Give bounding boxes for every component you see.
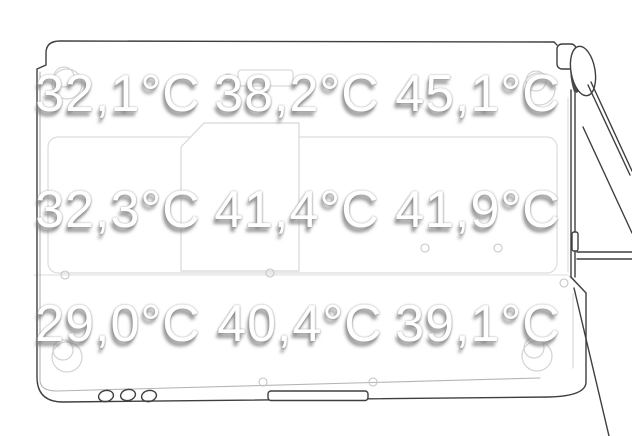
temperature-reading-r1c1: 41,4°C [214,180,380,240]
temperature-reading-r0c0: 32,1°C [35,64,201,124]
temperature-map: 32,1°C 38,2°C 45,1°C 32,3°C 41,4°C 41,9°… [0,0,632,436]
temperature-reading-r2c0: 29,0°C [35,294,201,354]
temperature-reading-r0c1: 38,2°C [214,64,380,124]
temperature-reading-r2c1: 40,4°C [217,294,383,354]
temperature-reading-r0c2: 45,1°C [395,64,561,124]
temperature-reading-r2c2: 39,1°C [395,294,561,354]
temperature-reading-r1c0: 32,3°C [35,180,201,240]
temperature-reading-r1c2: 41,9°C [395,180,561,240]
